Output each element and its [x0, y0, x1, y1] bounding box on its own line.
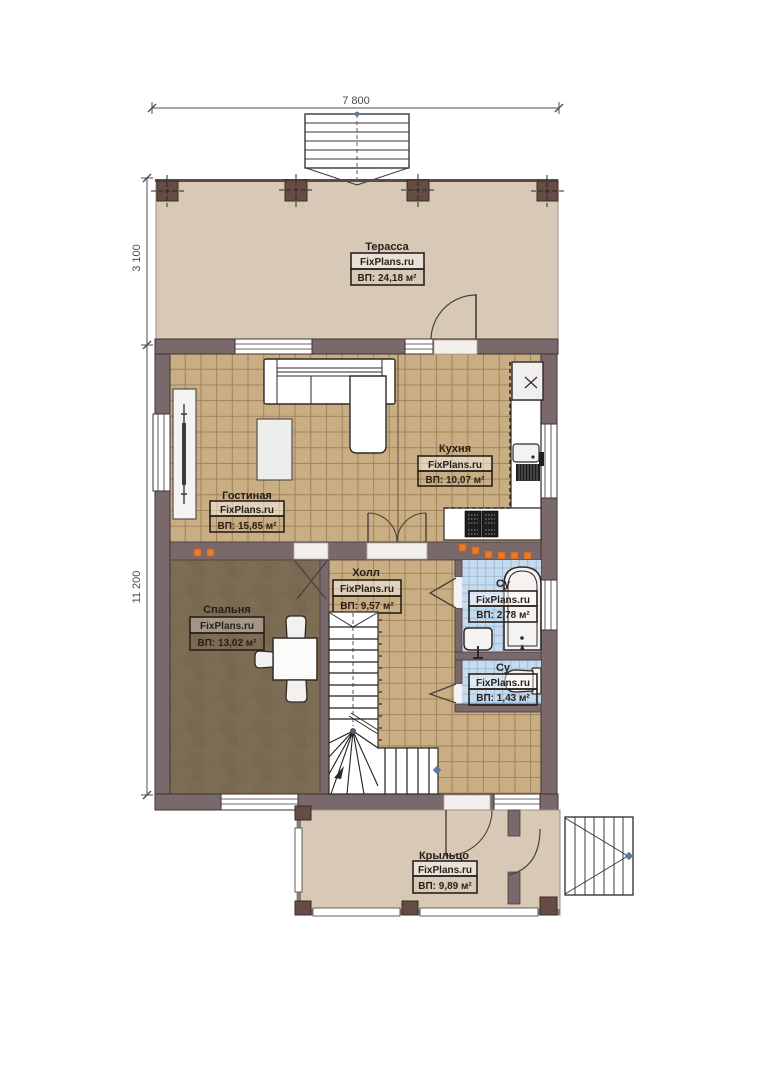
svg-text:ВП: 2,78 м²: ВП: 2,78 м²	[476, 610, 530, 621]
svg-text:ВП: 9,57 м²: ВП: 9,57 м²	[340, 601, 394, 612]
svg-text:FixPlans.ru: FixPlans.ru	[220, 505, 274, 516]
svg-text:Кухня: Кухня	[439, 443, 471, 455]
svg-text:ВП: 24,18 м²: ВП: 24,18 м²	[357, 273, 417, 284]
svg-text:FixPlans.ru: FixPlans.ru	[476, 678, 530, 689]
svg-text:Терасса: Терасса	[365, 241, 409, 253]
svg-text:11 200: 11 200	[131, 571, 143, 604]
svg-text:FixPlans.ru: FixPlans.ru	[428, 460, 482, 471]
svg-text:Су: Су	[496, 578, 511, 590]
svg-text:7 800: 7 800	[342, 95, 370, 107]
svg-text:FixPlans.ru: FixPlans.ru	[200, 621, 254, 632]
svg-text:Холл: Холл	[352, 567, 380, 579]
svg-text:ВП: 9,89 м²: ВП: 9,89 м²	[418, 881, 472, 892]
svg-text:FixPlans.ru: FixPlans.ru	[340, 584, 394, 595]
svg-text:FixPlans.ru: FixPlans.ru	[476, 595, 530, 606]
svg-text:ВП: 10,07 м²: ВП: 10,07 м²	[425, 475, 485, 486]
svg-text:3 100: 3 100	[131, 244, 143, 272]
svg-text:FixPlans.ru: FixPlans.ru	[360, 257, 414, 268]
svg-text:FixPlans.ru: FixPlans.ru	[418, 865, 472, 876]
svg-text:ВП: 15,85 м²: ВП: 15,85 м²	[217, 521, 277, 532]
svg-text:ВП: 1,43 м²: ВП: 1,43 м²	[476, 693, 530, 704]
svg-text:Спальня: Спальня	[203, 604, 251, 616]
svg-text:ВП: 13,02 м²: ВП: 13,02 м²	[197, 638, 257, 649]
svg-text:Су: Су	[496, 662, 511, 674]
